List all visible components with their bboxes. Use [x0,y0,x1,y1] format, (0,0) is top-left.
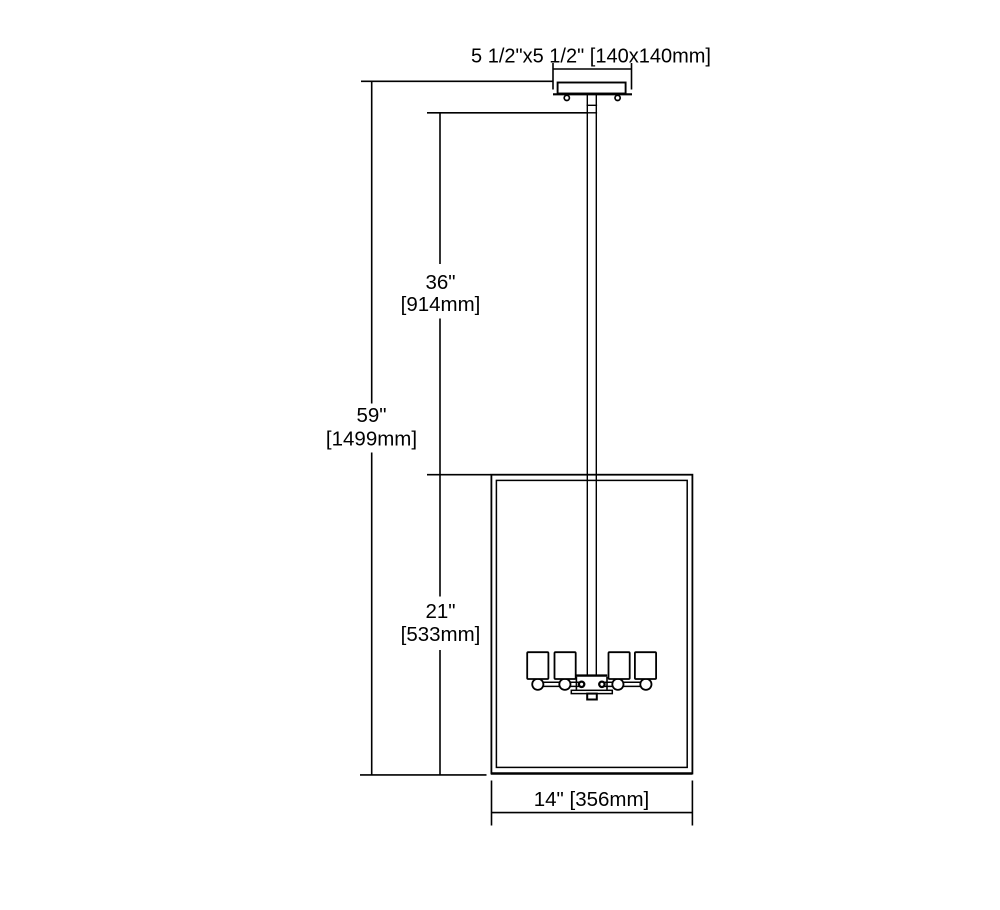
svg-text:[1499mm]: [1499mm] [326,428,417,451]
svg-text:[914mm]: [914mm] [401,293,481,316]
svg-text:59": 59" [356,404,386,427]
svg-text:5 1/2"x5 1/2" [140x140mm]: 5 1/2"x5 1/2" [140x140mm] [471,46,711,68]
svg-text:36": 36" [425,271,455,294]
svg-text:21": 21" [425,600,455,623]
svg-text:[533mm]: [533mm] [401,623,481,646]
svg-text:14" [356mm]: 14" [356mm] [534,788,650,811]
